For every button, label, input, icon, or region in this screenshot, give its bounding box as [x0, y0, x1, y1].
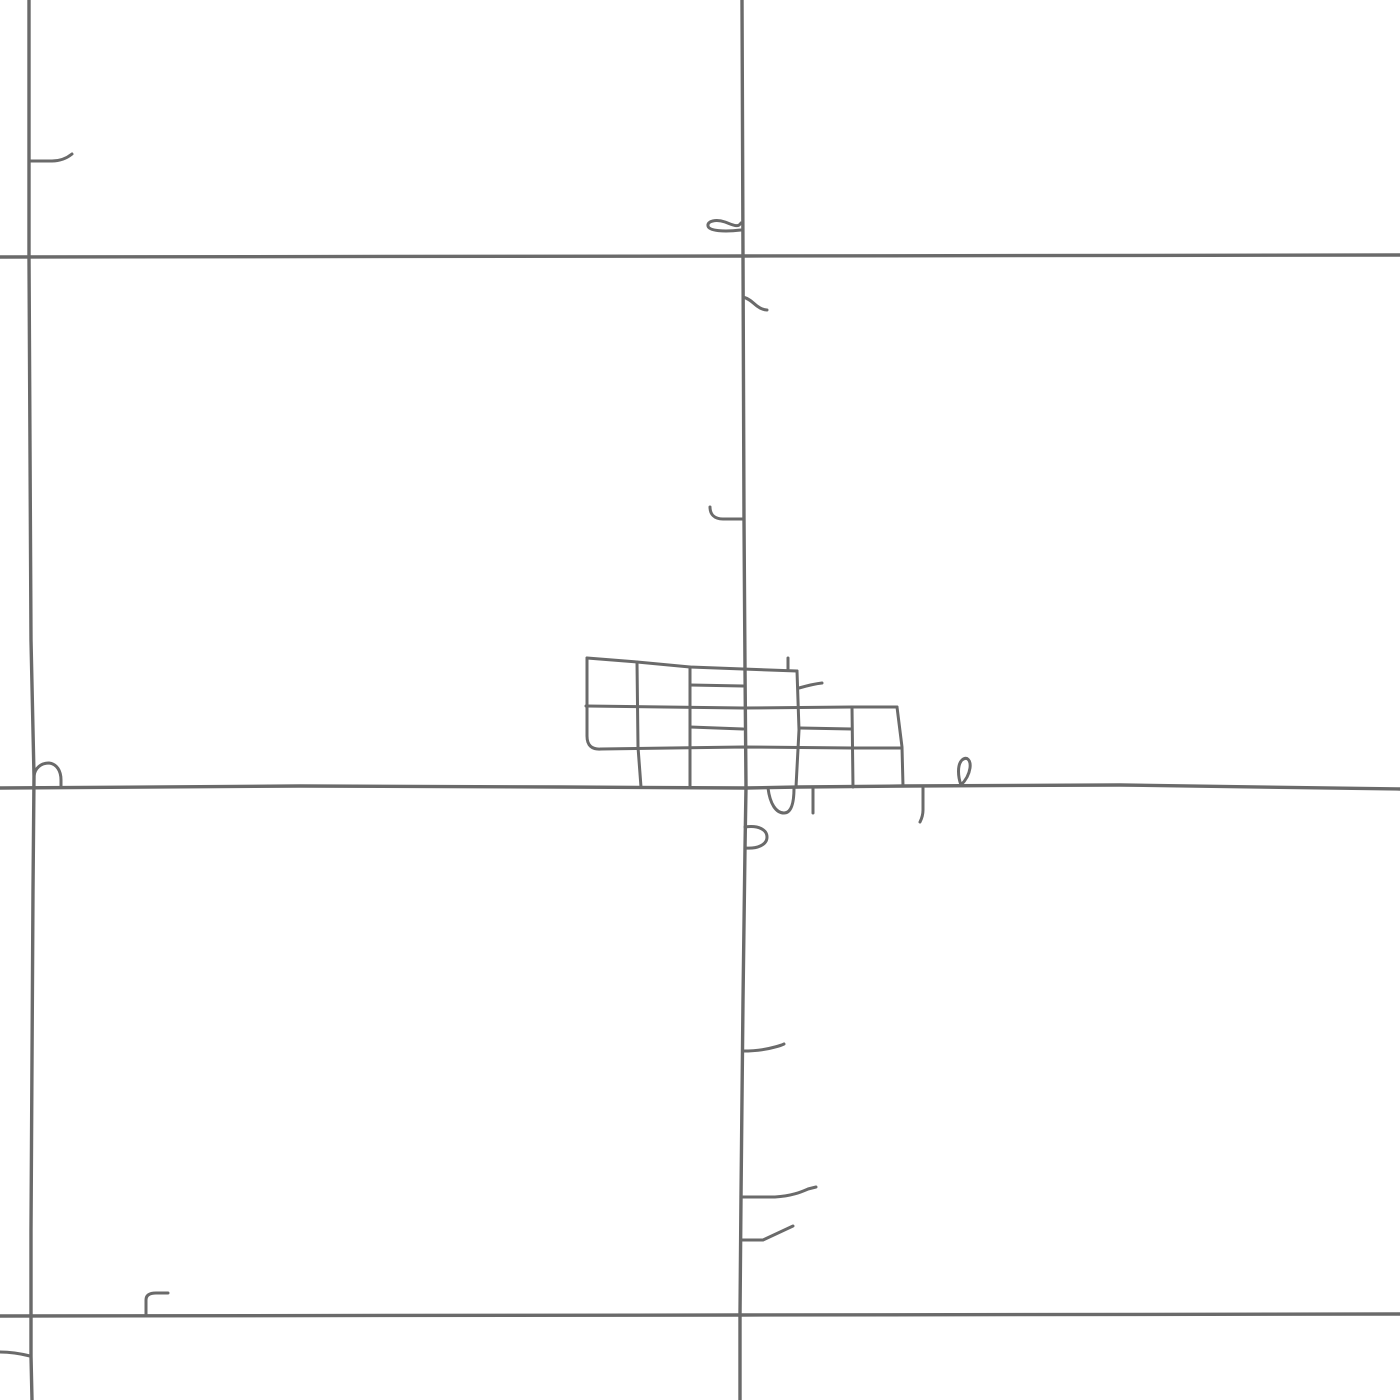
grid-row-lower-east: [800, 728, 852, 729]
southwest-corner-stub: [146, 1293, 168, 1314]
grid-northeast-spur: [799, 683, 822, 688]
road-horizontal-mid: [0, 785, 1400, 789]
grid-row-upper: [690, 685, 743, 686]
north-wavy-spur: [743, 297, 767, 310]
north-hook-spur: [710, 507, 743, 519]
southeast-spur-lower: [741, 1226, 793, 1240]
grid-east-edge: [897, 707, 903, 786]
south-rho-loop: [959, 758, 971, 785]
south-p-loop: [745, 827, 767, 849]
road-vertical-left: [29, 0, 34, 1400]
southeast-spur-upper: [743, 1044, 784, 1051]
map-viewport: [0, 0, 1400, 1400]
road-horizontal-top: [0, 255, 1400, 257]
north-lasso-spur: [708, 221, 741, 231]
west-bump-loop: [34, 763, 61, 787]
southwest-edge-spur: [0, 1352, 30, 1356]
map-svg: [0, 0, 1400, 1400]
grid-col-2: [637, 662, 641, 787]
grid-west-edge: [587, 658, 601, 749]
grid-top-edge: [587, 658, 797, 671]
southeast-spur-middle: [741, 1187, 816, 1197]
south-u-loop: [768, 788, 794, 813]
grid-col-6: [852, 707, 853, 787]
grid-row-bottom: [601, 747, 901, 749]
grid-row-mid: [586, 706, 897, 708]
road-horizontal-bottom: [0, 1314, 1400, 1316]
grid-row-lower-west: [690, 727, 743, 729]
northwest-spur: [30, 154, 72, 161]
road-vertical-main: [740, 0, 746, 1400]
south-stub-outer: [920, 788, 923, 822]
